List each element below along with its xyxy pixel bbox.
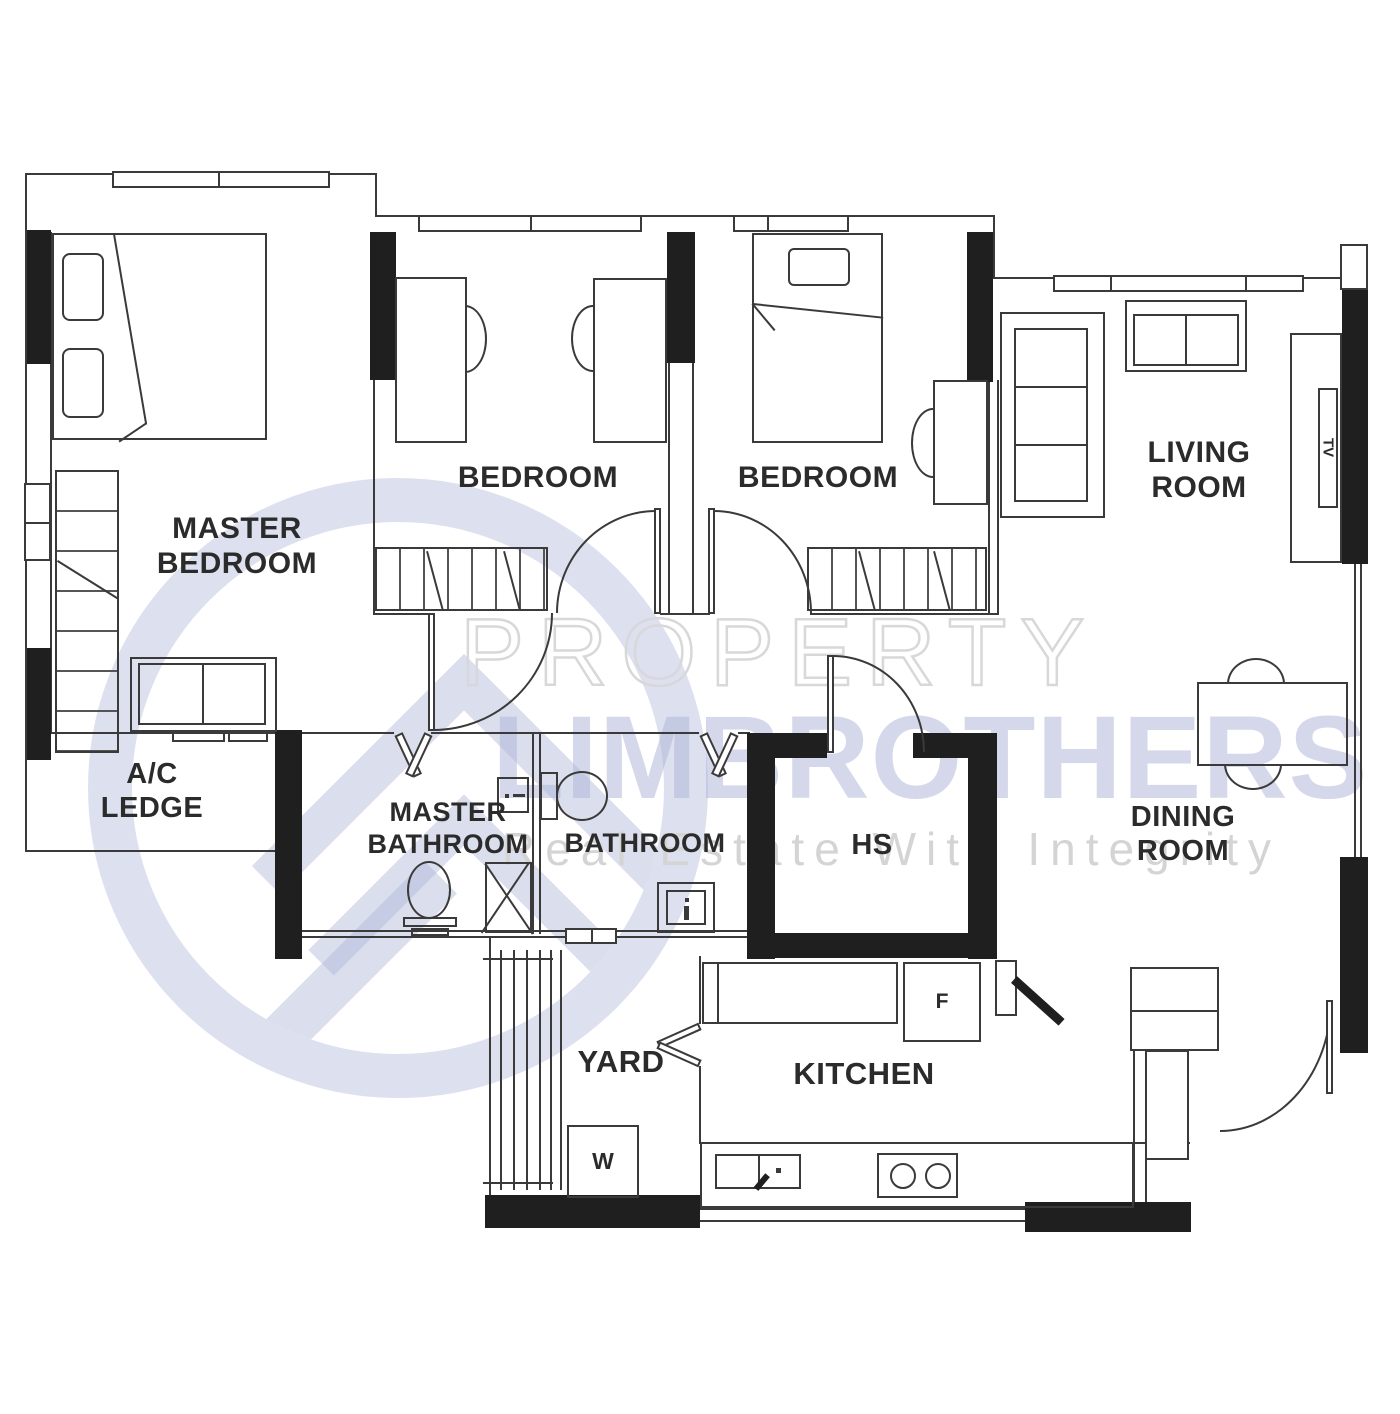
wall-bedroom2-living-a bbox=[988, 380, 990, 615]
master-bench-foot bbox=[172, 732, 225, 742]
label-ac-ledge: A/C LEDGE bbox=[101, 757, 203, 825]
louvre-frame-a bbox=[550, 950, 552, 1190]
entrance-door-swing bbox=[1220, 1000, 1332, 1132]
wall-bath-divider-a bbox=[532, 733, 534, 934]
bedroom1-door-swing bbox=[556, 510, 656, 613]
master-bed-pillow bbox=[62, 253, 104, 321]
bedroom1-desk bbox=[593, 278, 667, 443]
label-dining-room: DINING ROOM bbox=[1131, 800, 1236, 868]
louvre-tick-bottom bbox=[483, 1182, 553, 1184]
wall-masterbath-top-a bbox=[302, 732, 394, 734]
label-bathroom: BATHROOM bbox=[565, 828, 726, 860]
dining-chair-top bbox=[1227, 658, 1285, 684]
window-master-left bbox=[24, 483, 51, 561]
living-loveseat-divider bbox=[1185, 314, 1187, 366]
wall-black-master-bedroom1 bbox=[370, 232, 396, 380]
kitchen-tap-dot bbox=[776, 1168, 781, 1173]
window-mullion bbox=[767, 217, 769, 230]
wall-bottom-thin-b bbox=[700, 1220, 1026, 1222]
wall-bottom-thin-a bbox=[700, 1208, 1026, 1210]
hs-wall-bottom bbox=[747, 933, 997, 958]
bedroom1-desk bbox=[395, 277, 467, 443]
louvre-line bbox=[539, 950, 541, 1190]
dining-chair-bottom bbox=[1224, 764, 1282, 790]
bathroom-tap-icon bbox=[685, 898, 689, 902]
label-bedroom2: BEDROOM bbox=[738, 460, 898, 495]
wall-bath-bottom-b bbox=[302, 936, 748, 938]
master-bench-foot bbox=[228, 732, 268, 742]
wall-dining-right-a bbox=[1354, 563, 1356, 859]
wall-masterbath-top-b bbox=[431, 732, 535, 734]
wall-bath-divider-b bbox=[539, 733, 541, 934]
bedroom2-wardrobe bbox=[807, 547, 987, 611]
bedroom1-chair bbox=[465, 305, 487, 373]
foyer-cabinet bbox=[1130, 967, 1219, 1051]
wall-column-top-right bbox=[1340, 244, 1368, 290]
window-bedroom2-top bbox=[733, 215, 849, 232]
yard-louvre-window bbox=[494, 950, 564, 1190]
fridge-label: F bbox=[936, 990, 949, 1014]
window-bathroom-vent bbox=[565, 928, 617, 944]
window-mullion bbox=[26, 522, 49, 524]
wall-black-bedroom2-living bbox=[967, 232, 993, 382]
wall-black-living-right bbox=[1342, 290, 1368, 564]
bedroom2-door-swing bbox=[714, 510, 812, 613]
bedroom1-wardrobe bbox=[375, 547, 548, 611]
label-hs: HS bbox=[851, 828, 892, 862]
window-mullion bbox=[1245, 277, 1247, 290]
wall-black-dining-right bbox=[1340, 857, 1368, 1053]
kitchen-counter-divider bbox=[717, 962, 719, 1024]
label-kitchen: KITCHEN bbox=[793, 1056, 934, 1093]
window-living-top bbox=[1053, 275, 1304, 292]
wall-yard-left bbox=[489, 938, 491, 1197]
living-sofa-cushions bbox=[1014, 328, 1088, 502]
entrance-door-leaf bbox=[1145, 1050, 1189, 1160]
wall-step-bedroom2-living bbox=[993, 215, 995, 279]
master-wardrobe bbox=[55, 470, 119, 753]
hs-wall-top-left bbox=[747, 733, 827, 758]
wall-bedroom2-living-b bbox=[997, 380, 999, 615]
window-bedroom1-top bbox=[418, 215, 642, 232]
wall-black-bottom-yard bbox=[485, 1195, 700, 1228]
wall-black-acledge-bath bbox=[275, 730, 302, 959]
wall-ac-ledge-bottom bbox=[25, 850, 277, 852]
window-mullion bbox=[530, 217, 532, 230]
hob-burner-icon bbox=[890, 1163, 916, 1189]
bedroom2-bed-pillow bbox=[788, 248, 850, 286]
wall-yard-kitchen-a bbox=[699, 956, 701, 1024]
hs-wall-right bbox=[968, 733, 997, 959]
bedroom1-chair bbox=[571, 305, 593, 372]
bathroom-tap-icon bbox=[684, 906, 689, 920]
louvre-line bbox=[526, 950, 528, 1190]
fridge-door-open bbox=[1011, 976, 1065, 1026]
label-master-bedroom: MASTER BEDROOM bbox=[157, 511, 317, 582]
wall-bath-top-a bbox=[535, 732, 699, 734]
wall-corridor-top-c bbox=[810, 613, 997, 615]
master-bathroom-toilet-base bbox=[411, 928, 449, 936]
living-sofa-cushion-line bbox=[1014, 444, 1088, 446]
wall-bedroom1-2-right bbox=[692, 363, 694, 613]
louvre-tick-top bbox=[483, 958, 553, 960]
window-mullion bbox=[218, 173, 220, 186]
hs-wall-top-right bbox=[913, 733, 997, 758]
window-mullion bbox=[591, 930, 593, 942]
louvre-line bbox=[500, 950, 502, 1190]
entrance-gate-leaf bbox=[1326, 1000, 1333, 1094]
fridge: F bbox=[903, 962, 981, 1042]
master-bench-divider bbox=[202, 663, 204, 725]
wall-yard-kitchen-b bbox=[699, 1066, 701, 1144]
kitchen-counter-top bbox=[702, 962, 898, 1024]
wall-corridor-top-a bbox=[373, 613, 435, 615]
floor-plan: TV F bbox=[0, 0, 1400, 1414]
label-bedroom1: BEDROOM bbox=[458, 460, 618, 495]
fridge-door-panel bbox=[995, 960, 1017, 1016]
wall-dining-right-b bbox=[1360, 563, 1362, 859]
label-living-room: LIVING ROOM bbox=[1147, 435, 1250, 506]
louvre-frame-b bbox=[560, 950, 562, 1190]
hob-burner-icon bbox=[925, 1163, 951, 1189]
master-bed-pillow bbox=[62, 348, 104, 418]
floor-plan-canvas: PROPERTY LIMBROTHERS Real Estate With In… bbox=[0, 0, 1400, 1414]
washing-machine: W bbox=[567, 1125, 639, 1198]
wall-corridor-top-b bbox=[660, 613, 710, 615]
window-mullion bbox=[1110, 277, 1112, 290]
bedroom2-chair bbox=[911, 408, 933, 478]
bedroom2-desk bbox=[933, 380, 988, 505]
hs-door-swing bbox=[833, 655, 925, 752]
dining-table bbox=[1197, 682, 1348, 766]
master-bathroom-toilet-bowl bbox=[407, 861, 451, 919]
bathroom-toilet-bowl bbox=[556, 771, 608, 821]
tv-label: TV bbox=[1320, 438, 1337, 457]
wall-black-bedroom1-2 bbox=[667, 232, 695, 363]
wall-bedroom1-2-left bbox=[668, 363, 670, 613]
wall-step-master-bedroom1 bbox=[375, 173, 377, 217]
tv-unit: TV bbox=[1318, 388, 1338, 508]
louvre-line bbox=[513, 950, 515, 1190]
wall-black-left-lower bbox=[27, 648, 51, 760]
wall-black-left-upper bbox=[27, 230, 51, 364]
label-master-bathroom: MASTER BATHROOM bbox=[368, 797, 529, 861]
hs-wall-left bbox=[747, 733, 775, 959]
window-master-top bbox=[112, 171, 330, 188]
washer-label: W bbox=[592, 1148, 614, 1175]
master-bedroom-door-swing bbox=[433, 613, 553, 731]
living-sofa-cushion-line bbox=[1014, 386, 1088, 388]
foyer-cabinet-shelf bbox=[1130, 1010, 1219, 1012]
label-yard: YARD bbox=[578, 1044, 665, 1081]
master-bathroom-toilet-base bbox=[403, 917, 457, 927]
